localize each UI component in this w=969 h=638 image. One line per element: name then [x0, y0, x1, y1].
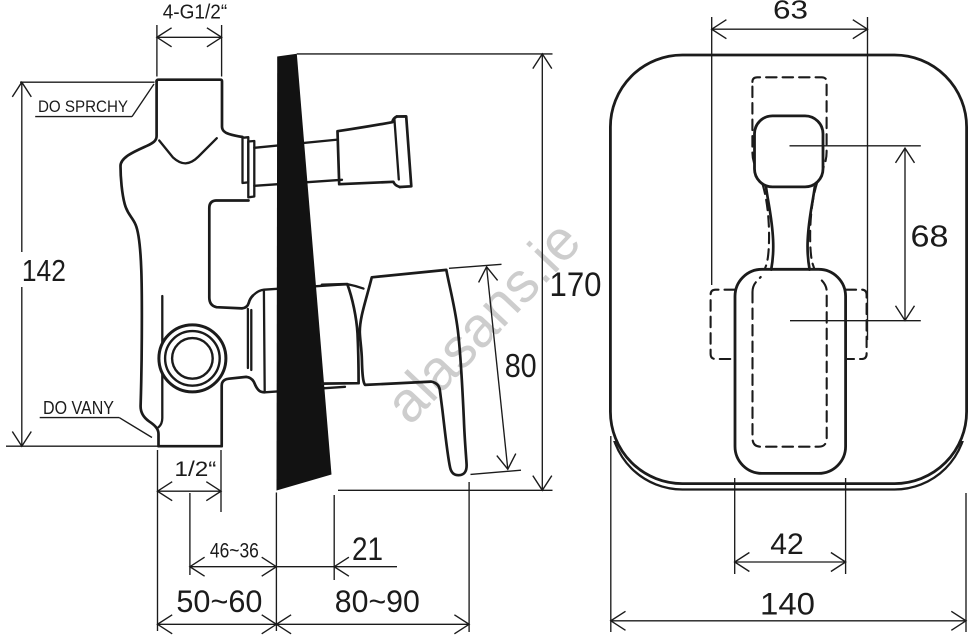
svg-text:80: 80 — [505, 347, 537, 384]
svg-text:142: 142 — [22, 253, 66, 288]
svg-text:DO VANY: DO VANY — [43, 398, 114, 418]
svg-text:4-G1/2“: 4-G1/2“ — [163, 2, 228, 24]
svg-text:68: 68 — [911, 220, 949, 254]
svg-text:DO SPRCHY: DO SPRCHY — [38, 97, 128, 116]
svg-text:42: 42 — [770, 528, 804, 561]
svg-text:170: 170 — [550, 266, 602, 304]
svg-text:80~90: 80~90 — [335, 583, 420, 619]
svg-text:63: 63 — [773, 0, 808, 25]
svg-text:1/2“: 1/2“ — [174, 458, 216, 481]
svg-text:50~60: 50~60 — [176, 583, 262, 619]
svg-text:46~36: 46~36 — [210, 540, 259, 563]
svg-text:alasans.ie: alasans.ie — [373, 209, 593, 436]
svg-text:21: 21 — [352, 531, 383, 567]
svg-text:140: 140 — [760, 586, 815, 622]
